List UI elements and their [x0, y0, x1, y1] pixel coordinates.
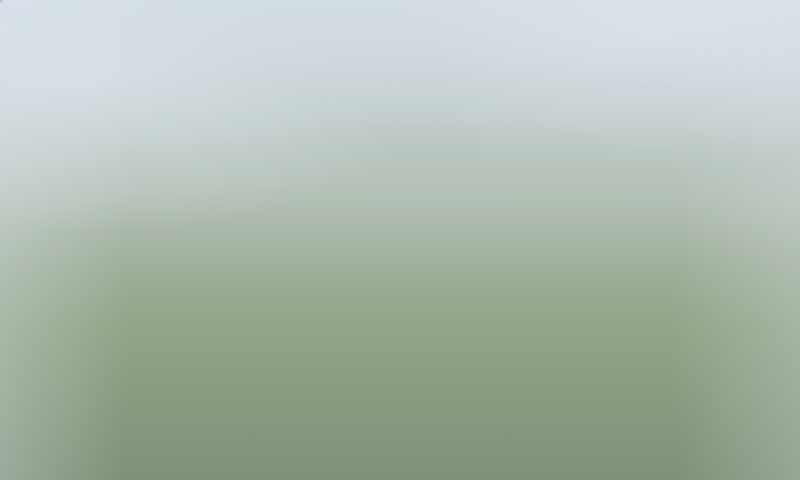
scene-svg: [0, 0, 800, 480]
aerial-rendering: [0, 0, 800, 480]
commercial-podium: [0, 0, 2, 2]
glass-skylight-roof: [1, 1, 3, 3]
